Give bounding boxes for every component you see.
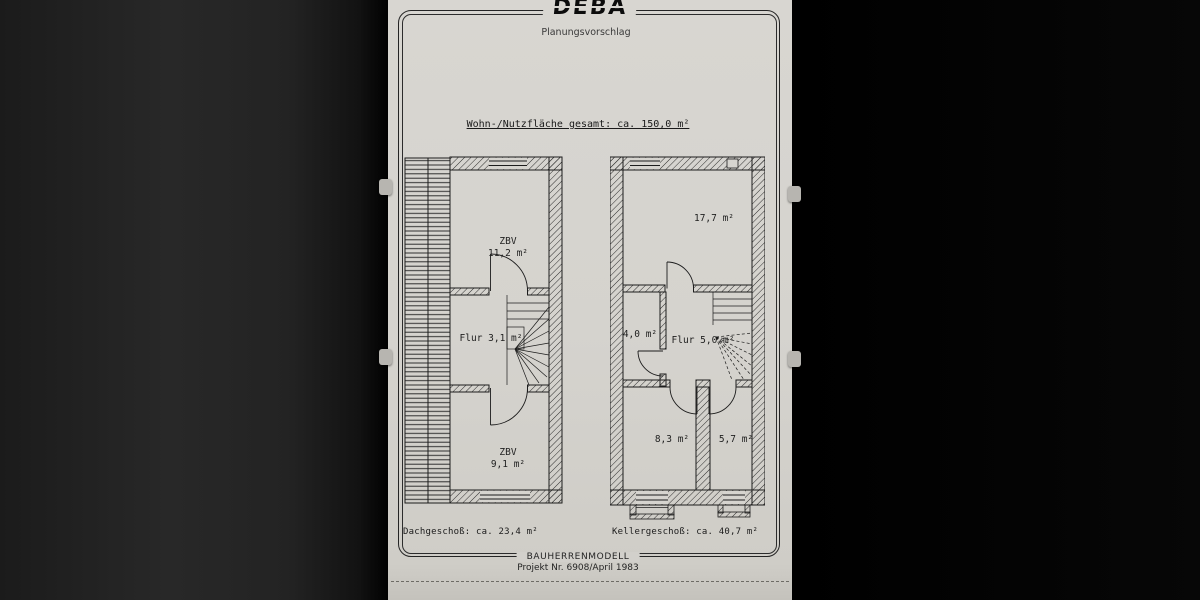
caption-dachgeschoss: Dachgeschoß: ca. 23,4 m² <box>403 527 538 537</box>
caption-kellergeschoss: Kellergeschoß: ca. 40,7 m² <box>612 527 758 537</box>
paper-clip-left-top <box>379 179 392 195</box>
room-area: 4,0 m² <box>623 329 657 340</box>
footer-model-name: BAUHERRENMODELL <box>517 552 640 562</box>
paper-page: DEBA Planungsvorschlag Wohn-/Nutzfläche … <box>388 0 792 600</box>
paper-clip-right-bottom <box>788 351 801 367</box>
total-area-title: Wohn-/Nutzfläche gesamt: ca. 150,0 m² <box>388 119 768 130</box>
planning-subtitle: Planungsvorschlag <box>541 27 630 38</box>
door-lower-room <box>491 388 528 425</box>
roof-slope-strip <box>405 158 450 503</box>
door-small-room <box>638 351 663 376</box>
room-area: 5,7 m² <box>719 434 753 445</box>
door-room-83 <box>670 387 697 414</box>
room-label: Flur 5,0 m² <box>672 335 735 346</box>
footer-project-number: Projekt Nr. 6908/April 1983 <box>517 563 639 573</box>
room-area: 8,3 m² <box>655 434 689 445</box>
deba-logo: DEBA <box>542 0 638 20</box>
room-area: 9,1 m² <box>491 459 525 470</box>
room-label: ZBV <box>499 447 516 458</box>
door-upper-room <box>491 254 528 291</box>
room-area: 17,7 m² <box>694 213 734 224</box>
room-label: ZBV <box>499 236 516 247</box>
door-main-room <box>667 262 694 289</box>
floorplan-dachgeschoss: ZBV 11,2 m² Flur 3,1 m² ZBV 9,1 m² <box>403 155 565 507</box>
room-area: 11,2 m² <box>488 248 528 259</box>
paper-clip-right-top <box>788 186 801 202</box>
perforation-line <box>391 581 789 582</box>
floorplan-kellergeschoss: 17,7 m² 4,0 m² Flur 5,0 m² 8,3 m² 5,7 m² <box>610 155 765 523</box>
light-wells <box>630 505 750 519</box>
interior-walls <box>623 285 752 490</box>
door-room-57 <box>709 387 736 414</box>
room-label: Flur 3,1 m² <box>460 333 523 344</box>
paper-clip-left-bottom <box>379 349 392 365</box>
